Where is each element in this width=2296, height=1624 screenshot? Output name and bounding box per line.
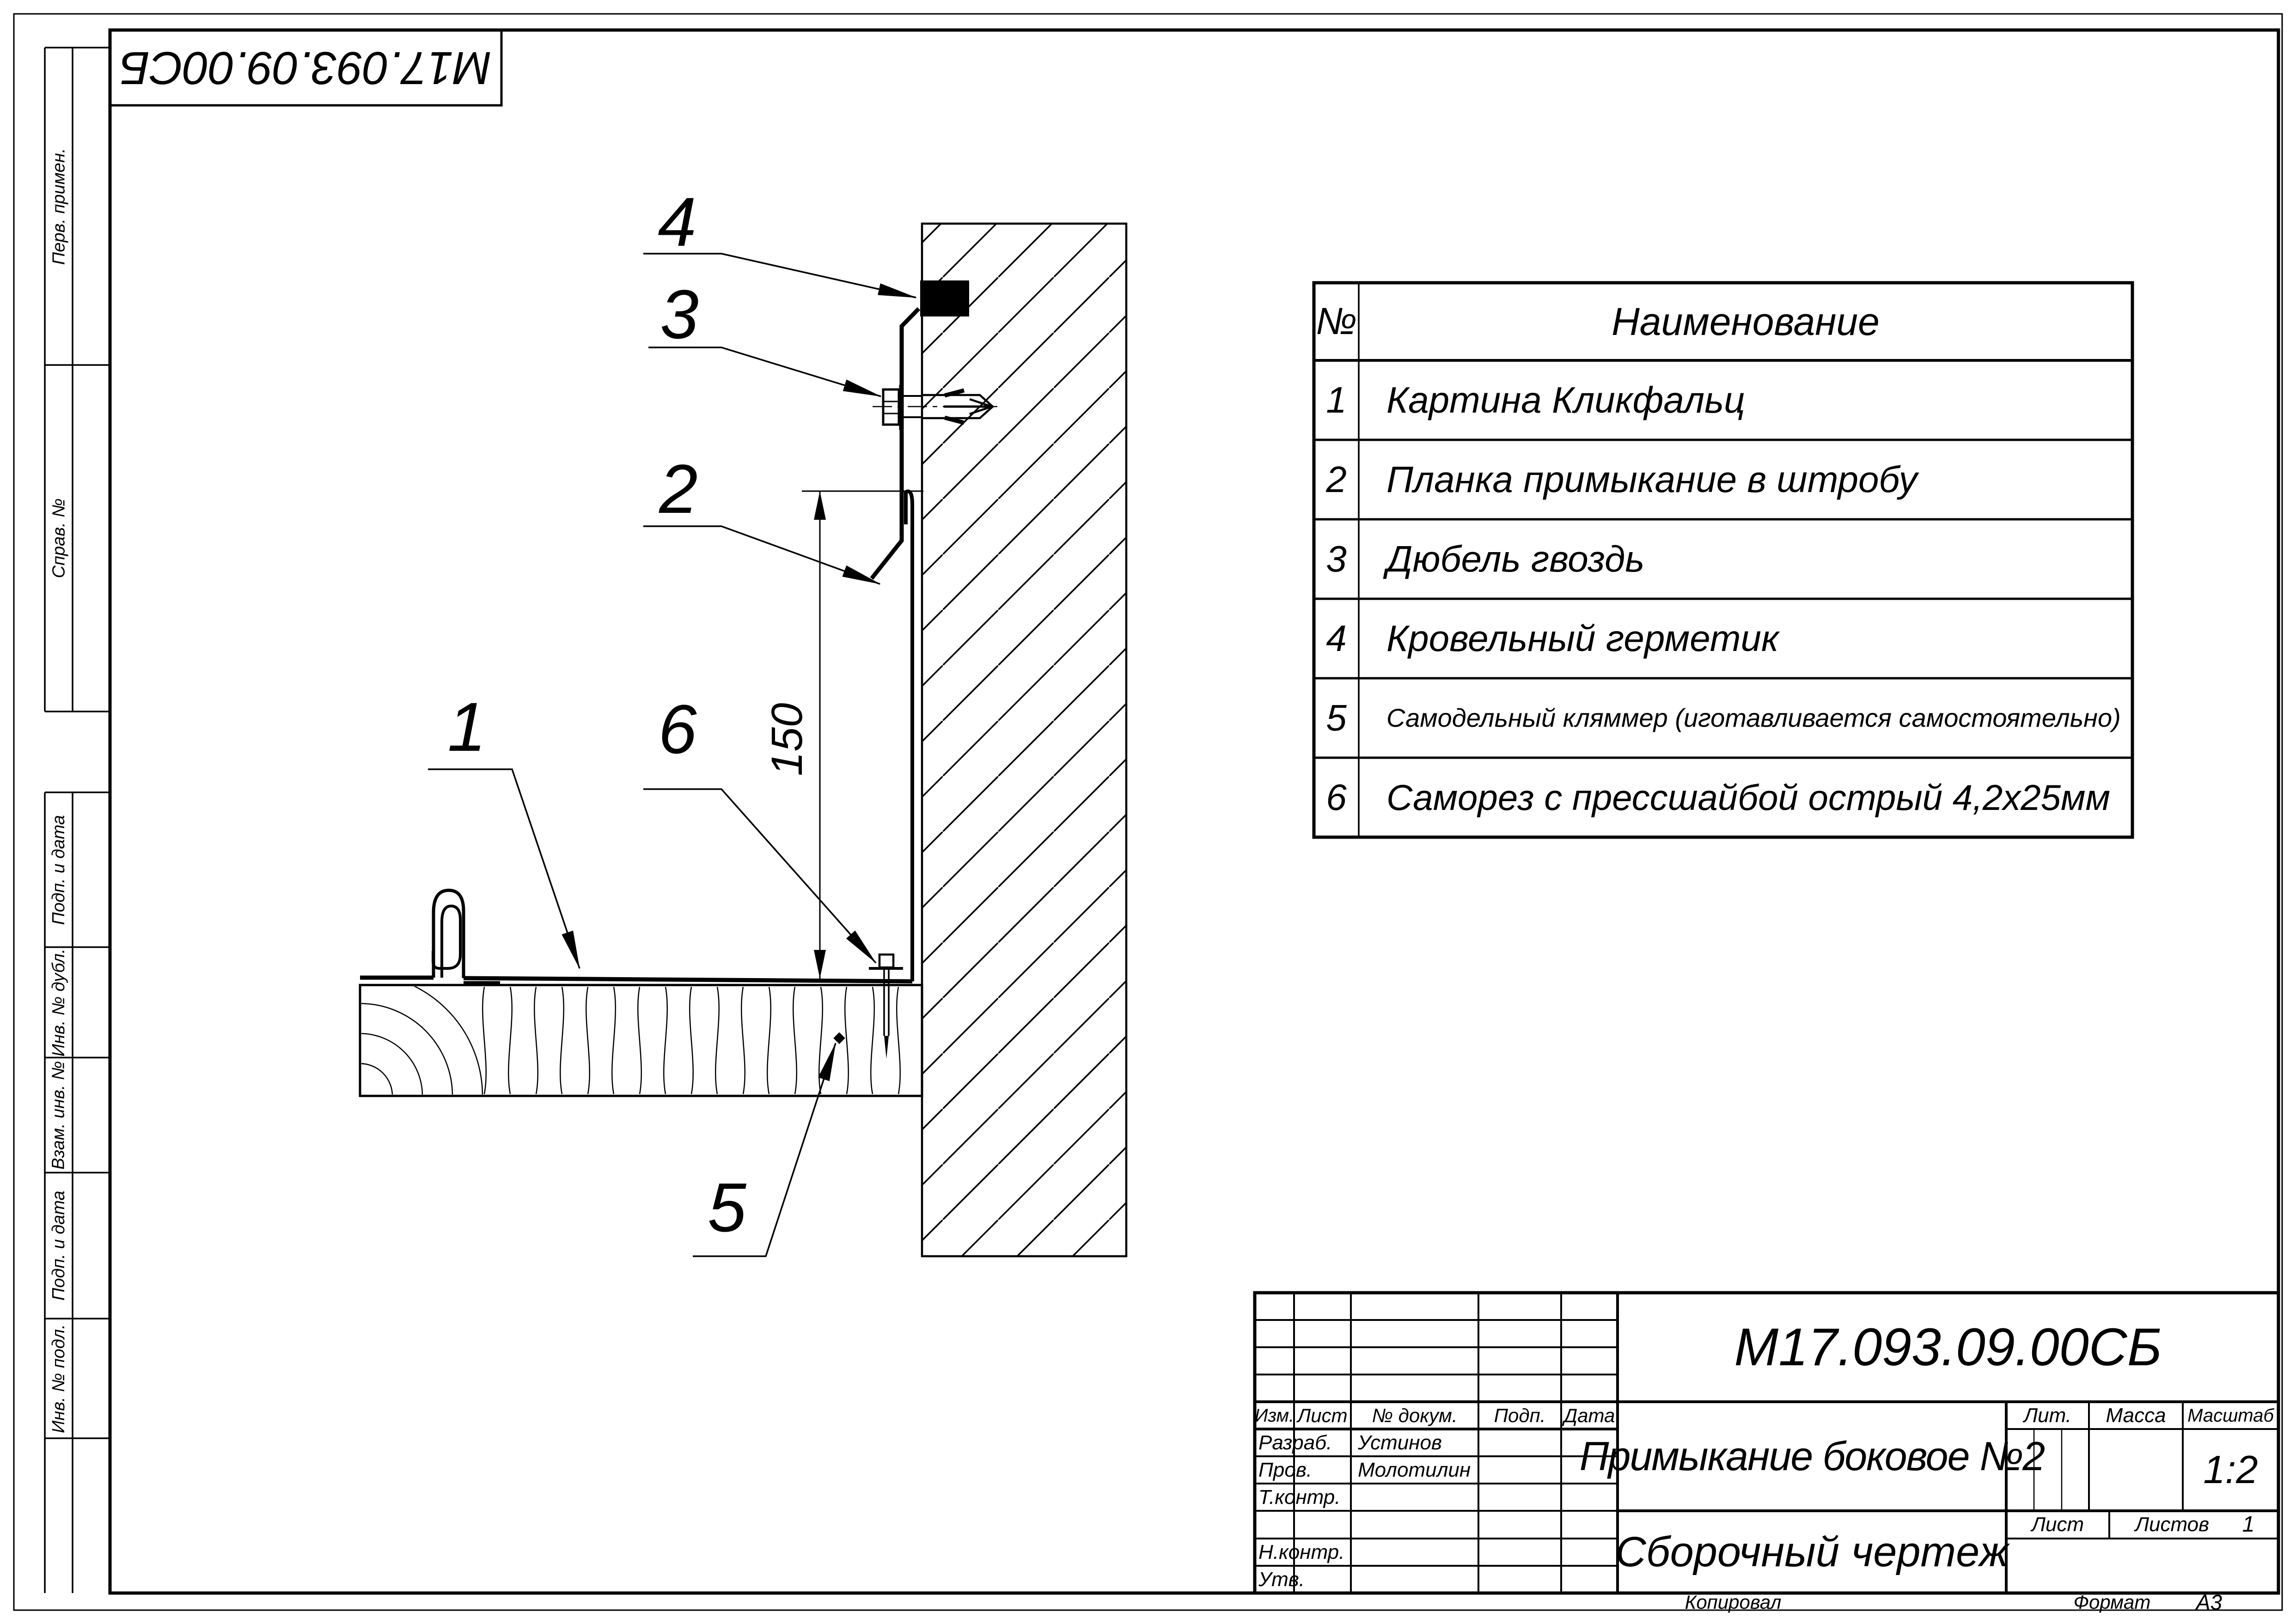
part-num: 3 bbox=[1314, 519, 1359, 599]
margin-label-perv-primen: Перв. примен. bbox=[45, 48, 73, 365]
margin-label-inv-no-dubl: Инв. № дубл. bbox=[45, 947, 73, 1058]
tb-row-razrab: Разраб. bbox=[1258, 1429, 1351, 1456]
callout-1: 1 bbox=[434, 688, 499, 765]
tb-col-izm: Изм. bbox=[1255, 1402, 1294, 1429]
part-num: 4 bbox=[1314, 599, 1359, 678]
tb-name-prov: Молотилин bbox=[1358, 1456, 1478, 1484]
tb-sheet-label: Лист bbox=[2006, 1511, 2109, 1539]
tb-row-prov: Пров. bbox=[1258, 1456, 1351, 1484]
tb-col-data: Дата bbox=[1561, 1402, 1618, 1429]
callout-2: 2 bbox=[646, 450, 711, 527]
callout-4: 4 bbox=[645, 185, 709, 259]
panel-upstand bbox=[906, 492, 912, 981]
tb-scale-label: Масштаб bbox=[2183, 1402, 2278, 1429]
tb-row-tkontr: Т.контр. bbox=[1258, 1484, 1351, 1511]
kopiroval-label: Копировал bbox=[1594, 1593, 1872, 1612]
part-name: Картина Кликфальц bbox=[1386, 360, 2131, 440]
wall-section bbox=[922, 224, 1126, 1256]
part-name: Дюбель гвоздь bbox=[1386, 519, 2131, 599]
part-num: 5 bbox=[1314, 678, 1359, 758]
tb-row-nkontr: Н.контр. bbox=[1258, 1539, 1351, 1566]
tb-mass-label: Масса bbox=[2089, 1402, 2183, 1429]
tb-doc-type: Сборочный чертеж bbox=[1618, 1511, 2006, 1593]
format-value: А3 bbox=[2172, 1593, 2246, 1612]
margin-label-inv-no-podl: Инв. № подл. bbox=[45, 1319, 73, 1438]
format-label: Формат bbox=[2052, 1593, 2172, 1612]
part-name: Кровельный герметик bbox=[1386, 599, 2131, 678]
parts-col-num: № bbox=[1314, 283, 1359, 360]
leader-3 bbox=[648, 347, 881, 396]
tb-doc-number: М17.093.09.00СБ bbox=[1618, 1293, 2278, 1402]
leader-6 bbox=[643, 789, 876, 963]
tb-sheets-value: 1 bbox=[2228, 1511, 2269, 1539]
parts-col-name: Наименование bbox=[1359, 283, 2132, 360]
dimension-150: 150 bbox=[718, 714, 856, 765]
tb-title: Примыкание боковое №2 bbox=[1618, 1402, 2006, 1511]
tb-col-list: Лист bbox=[1294, 1402, 1351, 1429]
tb-col-dokum: № докум. bbox=[1351, 1402, 1478, 1429]
part-name: Самодельный кляммер (иготавливается само… bbox=[1386, 678, 2131, 758]
part-num: 1 bbox=[1314, 360, 1359, 440]
tb-col-podp: Подп. bbox=[1478, 1402, 1561, 1429]
tb-name-razrab: Устинов bbox=[1358, 1429, 1478, 1456]
callout-3: 3 bbox=[647, 277, 712, 351]
margin-label-podp-i-data-1: Подп. и дата bbox=[45, 792, 73, 947]
callout-6: 6 bbox=[645, 691, 710, 767]
margin-label-vzam-inv-no: Взам. инв. № bbox=[45, 1058, 73, 1173]
margin-label-podp-i-data-2: Подп. и дата bbox=[45, 1173, 73, 1319]
drawing-sheet: М17.093.09.00СБ Перв. примен. Справ. № П… bbox=[0, 0, 2296, 1624]
stamp-doc-number: М17.093.09.00СБ bbox=[110, 30, 501, 105]
margin-label-sprav-no: Справ. № bbox=[45, 365, 73, 712]
part-name: Планка примыкание в штробу bbox=[1386, 440, 2131, 519]
callout-5: 5 bbox=[695, 1168, 759, 1247]
leader-2 bbox=[643, 526, 880, 584]
tb-lit-label: Лит. bbox=[2006, 1402, 2089, 1429]
tb-row-utv: Утв. bbox=[1258, 1566, 1351, 1593]
tb-scale-value: 1:2 bbox=[2183, 1429, 2278, 1511]
part-name: Саморез с прессшайбой острый 4,2х25мм bbox=[1386, 758, 2131, 837]
leader-1 bbox=[428, 769, 580, 968]
sealant bbox=[920, 280, 969, 316]
part-num: 6 bbox=[1314, 758, 1359, 837]
part-num: 2 bbox=[1314, 440, 1359, 519]
tb-sheets-label: Листов bbox=[2117, 1511, 2228, 1539]
